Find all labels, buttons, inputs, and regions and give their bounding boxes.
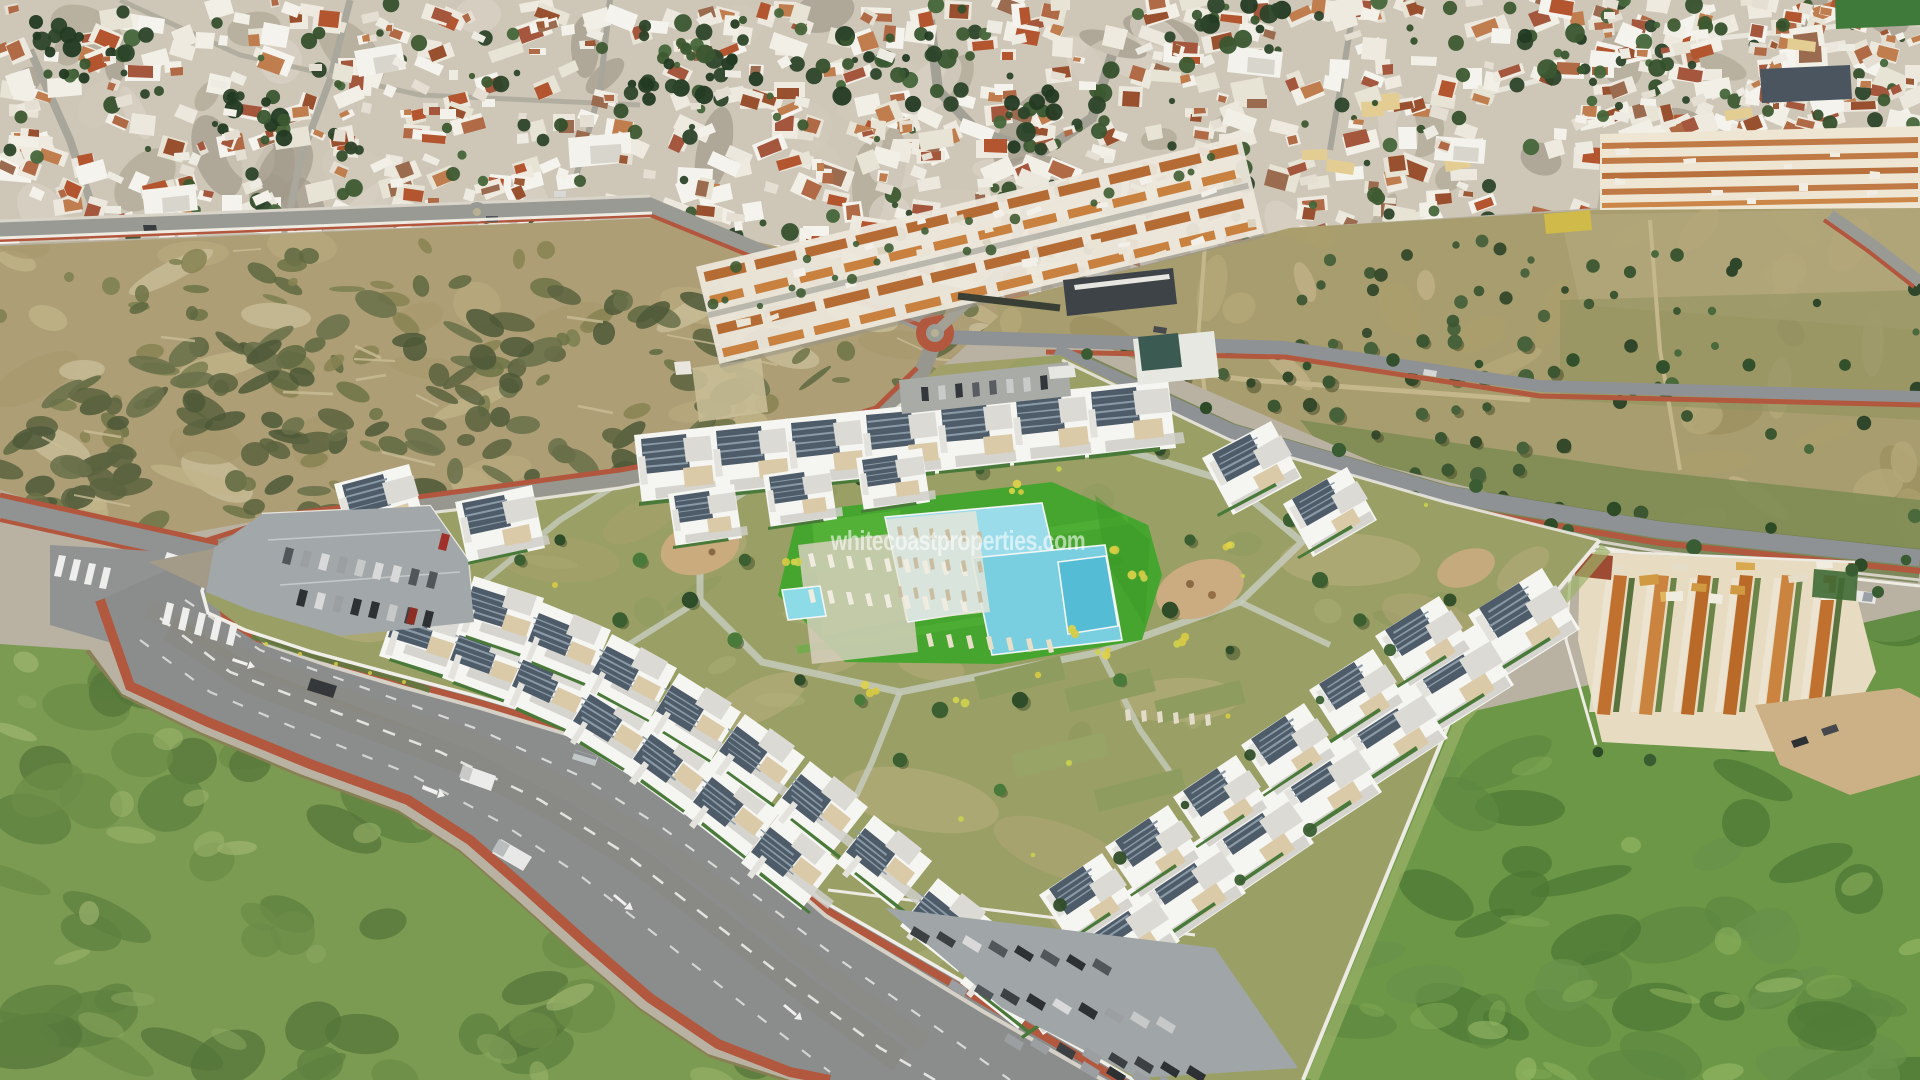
- svg-text:whitecoastproperties.com: whitecoastproperties.com: [830, 525, 1085, 557]
